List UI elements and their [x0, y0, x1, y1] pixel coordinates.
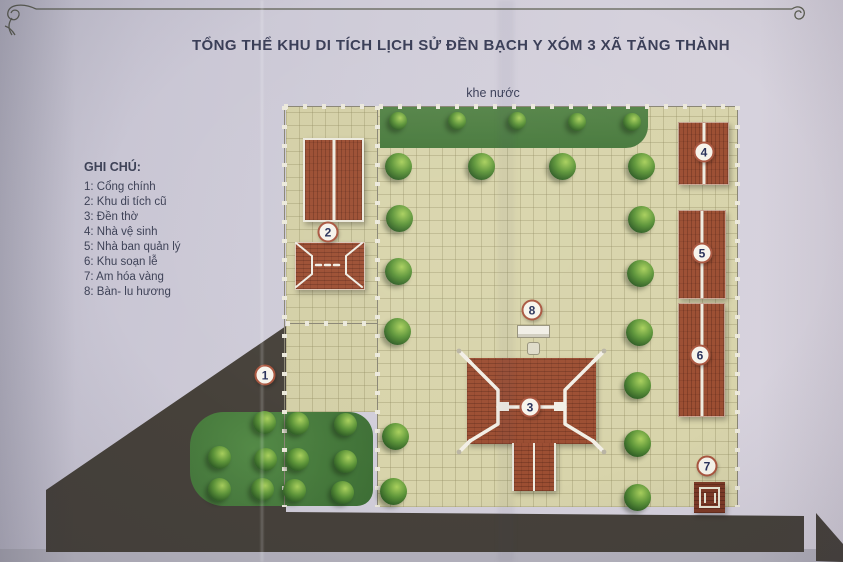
tree-symbol: [251, 478, 274, 501]
tree-symbol: [385, 258, 412, 285]
incense-urn: [527, 342, 540, 355]
tree-symbol: [254, 448, 277, 471]
marker-1-main-gate: 1: [255, 365, 276, 386]
tree-symbol: [331, 481, 354, 504]
tree-symbol: [253, 411, 276, 434]
tree-symbol: [624, 372, 651, 399]
plan-title: TỔNG THỂ KHU DI TÍCH LỊCH SỬ ĐỀN BẠCH Y …: [80, 37, 842, 54]
legend-item: 5: Nhà ban quản lý: [84, 240, 181, 255]
tree-symbol: [627, 260, 654, 287]
old-relic-hip-building: [295, 242, 365, 290]
legend-heading: GHI CHÚ:: [84, 160, 181, 174]
marker-5-management: 5: [692, 243, 713, 264]
old-relic-building: [303, 138, 364, 222]
legend-item: 7: Am hóa vàng: [84, 270, 181, 285]
fence-divider: [375, 106, 380, 507]
fence-right: [735, 106, 740, 507]
water-channel-label: khe nước: [428, 86, 558, 100]
tree-symbol: [286, 412, 309, 435]
fence-left: [282, 106, 287, 507]
tree-symbol: [386, 205, 413, 232]
legend-item: 8: Bàn- lu hương: [84, 285, 181, 300]
tree-symbol: [624, 484, 651, 511]
legend-item: 4: Nhà vệ sinh: [84, 225, 181, 240]
fence-annex-bottom: [286, 321, 377, 326]
tree-symbol: [389, 112, 407, 130]
tree-symbol: [385, 153, 412, 180]
tree-symbol: [286, 448, 309, 471]
legend-item: 6: Khu soạn lễ: [84, 255, 181, 270]
marker-6-ceremony-prep: 6: [690, 345, 711, 366]
tree-symbol: [626, 319, 653, 346]
tree-symbol: [549, 153, 576, 180]
marker-4-toilet: 4: [694, 142, 715, 163]
tree-symbol: [624, 430, 651, 457]
legend-item: 1: Cổng chính: [84, 180, 181, 195]
tree-symbol: [468, 153, 495, 180]
marker-7-shrine: 7: [697, 456, 718, 477]
tree-symbol: [334, 413, 357, 436]
tree-symbol: [283, 479, 306, 502]
tree-symbol: [380, 478, 407, 505]
tree-symbol: [623, 113, 641, 131]
tree-symbol: [508, 112, 526, 130]
temple-porch: [512, 443, 556, 491]
tree-symbol: [628, 206, 655, 233]
marker-3-temple: 3: [520, 397, 541, 418]
tree-symbol: [384, 318, 411, 345]
legend-item: 2: Khu di tích cũ: [84, 195, 181, 210]
marker-8-altar: 8: [522, 300, 543, 321]
tree-symbol: [334, 450, 357, 473]
site-plan-photo: 1 2 3 4 5 6 7 8 TỔNG THỂ KHU DI TÍCH LỊC…: [0, 0, 843, 562]
marker-2-old-relic: 2: [318, 222, 339, 243]
tree-symbol: [208, 446, 231, 469]
fence-top: [284, 104, 737, 109]
tree-symbol: [628, 153, 655, 180]
altar-table: [517, 325, 550, 338]
road-corner-wedge: [816, 513, 843, 562]
tree-symbol: [448, 112, 466, 130]
legend-item: 3: Đền thờ: [84, 210, 181, 225]
paper-burning-shrine: [694, 482, 725, 513]
tree-symbol: [382, 423, 409, 450]
legend: GHI CHÚ: 1: Cổng chính 2: Khu di tích cũ…: [84, 160, 181, 300]
tree-symbol: [568, 113, 586, 131]
tree-symbol: [208, 478, 231, 501]
